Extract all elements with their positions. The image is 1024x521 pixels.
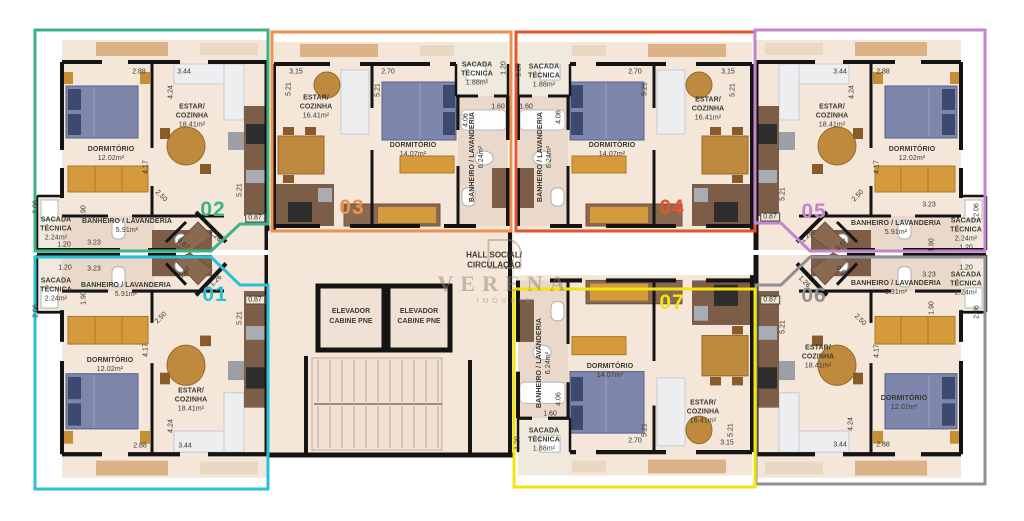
dim-label: 1.20 bbox=[501, 61, 508, 75]
unit-number-01: 01 bbox=[202, 283, 227, 307]
watermark-name: VERENA bbox=[438, 271, 573, 297]
dim-label: 3.44 bbox=[177, 69, 191, 76]
dim-label: 4.17 bbox=[143, 343, 150, 357]
dim-label: 2.70 bbox=[628, 438, 642, 445]
room-label-dormitorio: DORMITÓRIO12.02m² bbox=[88, 146, 135, 164]
unit-number-02: 02 bbox=[200, 198, 225, 222]
dim-label: 2.88 bbox=[876, 442, 890, 449]
dim-label: 0.87 bbox=[760, 296, 780, 305]
room-label-sacada: SACADA TÉCNICA2.24m² bbox=[40, 278, 72, 305]
room-label-banheiro: BANHEIRO / LAVANDERIA6.24m² bbox=[536, 318, 554, 408]
dim-label: 1.90 bbox=[81, 291, 88, 305]
dim-label: 0.87 bbox=[760, 213, 780, 222]
floor-plan-canvas: VERENA IMÓVEIS HALL SOCIAL/ CIRCULAÇÃO E… bbox=[0, 0, 1024, 521]
dim-label: 4.24 bbox=[168, 85, 175, 99]
dim-label: 3.44 bbox=[833, 69, 847, 76]
dim-label: 2.06 bbox=[974, 305, 981, 319]
dim-label: 5.21 bbox=[728, 423, 735, 437]
dim-label: 4.24 bbox=[168, 419, 175, 433]
room-label-banheiro: BANHEIRO / LAVANDERIA6.24m² bbox=[469, 112, 487, 202]
unit-number-04: 04 bbox=[659, 196, 684, 220]
dim-label: 2.06 bbox=[974, 203, 981, 217]
unit-number-03: 03 bbox=[339, 196, 364, 220]
dim-label: 1.60 bbox=[491, 104, 505, 111]
dim-label: 4.06 bbox=[556, 110, 563, 124]
dim-label: 5.21 bbox=[286, 82, 293, 96]
dim-label: 1.20 bbox=[515, 436, 522, 450]
dim-label: 3.23 bbox=[87, 266, 101, 273]
room-label-estar: ESTAR/ COZINHA18.41m² bbox=[175, 388, 208, 415]
dim-label: 3.15 bbox=[289, 69, 303, 76]
dim-label: 1.20 bbox=[58, 265, 72, 272]
room-label-sacada: SACADA TÉCNICA2.24m² bbox=[40, 217, 72, 244]
dim-label: 1.20 bbox=[959, 265, 973, 272]
dim-label: 5.21 bbox=[642, 82, 649, 96]
dim-label: 2.06 bbox=[33, 200, 40, 214]
dim-label: 1.20 bbox=[57, 242, 71, 249]
room-label-dormitorio: DORMITÓRIO14.07m² bbox=[390, 142, 437, 160]
dim-label: 4.17 bbox=[874, 160, 881, 174]
dim-label: 1.20 bbox=[959, 245, 973, 252]
room-label-sacada: SACADA TÉCNICA2.24m² bbox=[950, 272, 982, 299]
dim-label: 1.90 bbox=[929, 301, 936, 315]
dim-label: 3.23 bbox=[87, 240, 101, 247]
room-label-sacada: SACADA TÉCNICA2.24m² bbox=[950, 218, 982, 245]
dim-label: 3.15 bbox=[720, 440, 734, 447]
room-label-estar: ESTAR/ COZINHA18.41m² bbox=[176, 104, 209, 131]
room-label-banheiro: BANHEIRO / LAVANDERIA5.91m² bbox=[851, 280, 941, 298]
unit-number-07: 07 bbox=[659, 291, 684, 315]
watermark-sub: IMÓVEIS bbox=[438, 298, 573, 305]
dim-label: 5.21 bbox=[237, 311, 244, 325]
dim-label: 2.88 bbox=[132, 69, 146, 76]
dim-label: 5.21 bbox=[237, 183, 244, 197]
dim-label: 2.88 bbox=[133, 443, 147, 450]
room-label-banheiro: BANHEIRO / LAVANDERIA5.91m² bbox=[81, 282, 171, 300]
dim-label: 0.87 bbox=[245, 296, 265, 305]
dim-label: 3.44 bbox=[833, 442, 847, 449]
room-label-estar: ESTAR/ COZINHA16.41m² bbox=[687, 400, 720, 427]
elevator-2-label: ELEVADOR CABINE PNE bbox=[397, 307, 440, 327]
room-label-dormitorio: DORMITÓRIO14.07m² bbox=[589, 142, 636, 160]
dim-label: 4.06 bbox=[556, 392, 563, 406]
room-label-dormitorio: DORMITÓRIO14.07m² bbox=[587, 363, 634, 381]
dim-label: 2.70 bbox=[381, 69, 395, 76]
dim-label: 4.17 bbox=[143, 160, 150, 174]
room-label-estar: ESTAR/ COZINHA18.41m² bbox=[816, 104, 849, 131]
room-label-sacada: SACADA TÉCNICA1.88m² bbox=[528, 428, 560, 455]
room-label-sacada: SACADA TÉCNICA1.88m² bbox=[528, 64, 560, 91]
room-label-banheiro: BANHEIRO / LAVANDERIA5.91m² bbox=[82, 218, 172, 236]
room-label-dormitorio: DORMITÓRIO12.02m² bbox=[889, 146, 936, 164]
dim-label: 1.60 bbox=[543, 411, 557, 418]
dim-label: 4.17 bbox=[874, 344, 881, 358]
dim-label: 5.21 bbox=[780, 320, 787, 334]
elevator-1-label: ELEVADOR CABINE PNE bbox=[329, 307, 372, 327]
room-label-banheiro: BANHEIRO / LAVANDERIA6.24m² bbox=[537, 112, 555, 202]
dim-label: 5.21 bbox=[730, 83, 737, 97]
unit-number-06: 06 bbox=[801, 284, 826, 308]
dim-label: 5.21 bbox=[642, 423, 649, 437]
dim-label: 5.21 bbox=[780, 187, 787, 201]
room-label-sacada: SACADA TÉCNICA1.88m² bbox=[461, 62, 493, 89]
room-label-dormitorio: DORMITÓRIO12.02m² bbox=[881, 395, 928, 413]
unit-number-05: 05 bbox=[801, 200, 826, 224]
room-label-estar: ESTAR/ COZINHA18.41m² bbox=[802, 345, 835, 372]
dim-label: 3.44 bbox=[178, 443, 192, 450]
hall-label: HALL SOCIAL/ CIRCULAÇÃO bbox=[466, 251, 522, 272]
room-label-estar: ESTAR/ COZINHA16.41m² bbox=[692, 97, 725, 124]
dim-label: 2.70 bbox=[628, 69, 642, 76]
dim-label: 1.20 bbox=[516, 63, 523, 77]
dim-label: 4.24 bbox=[849, 85, 856, 99]
watermark: VERENA IMÓVEIS bbox=[438, 239, 573, 305]
room-label-estar: ESTAR/ COZINHA16.41m² bbox=[300, 95, 333, 122]
dim-label: 4.06 bbox=[463, 113, 470, 127]
dim-label: 4.24 bbox=[848, 417, 855, 431]
dim-label: 3.15 bbox=[721, 69, 735, 76]
dim-label: 5.21 bbox=[375, 83, 382, 97]
room-label-dormitorio: DORMITÓRIO12.02m² bbox=[87, 357, 134, 375]
dim-label: 3.23 bbox=[922, 202, 936, 209]
dim-label: 0.87 bbox=[245, 214, 265, 223]
dim-label: 2.06 bbox=[33, 304, 40, 318]
dim-label: 3.23 bbox=[922, 272, 936, 279]
dim-label: 1.90 bbox=[81, 205, 88, 219]
room-label-banheiro: BANHEIRO / LAVANDERIA5.91m² bbox=[851, 220, 941, 238]
dim-label: 1.90 bbox=[929, 238, 936, 252]
dim-label: 1.60 bbox=[519, 104, 533, 111]
dim-label: 2.88 bbox=[876, 69, 890, 76]
